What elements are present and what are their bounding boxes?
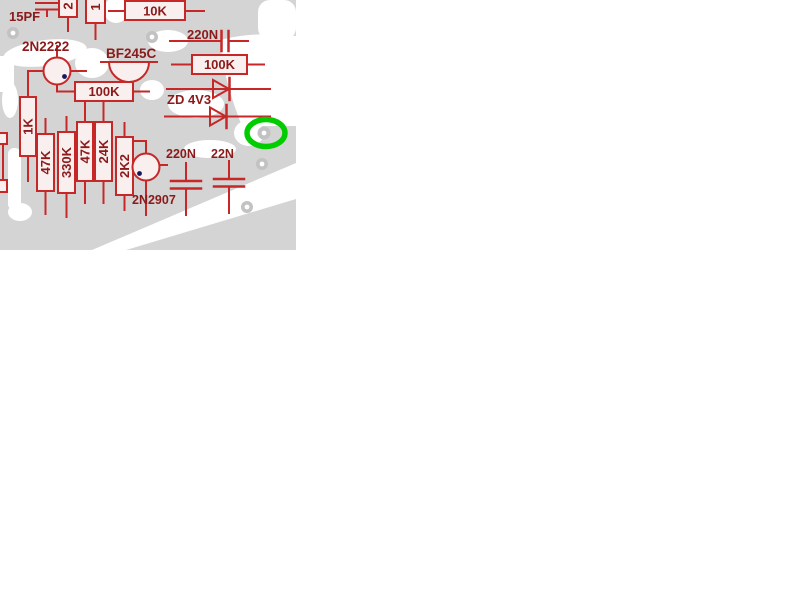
label-47k-a: 47K — [38, 150, 53, 174]
label-220n-top: 220N — [187, 27, 218, 42]
label-100k-right: 100K — [204, 57, 236, 72]
label-resistor-top-b: 1 — [88, 3, 103, 10]
transistor-outline — [133, 154, 160, 181]
label-100k-left: 100K — [88, 84, 120, 99]
label-2n2907: 2N2907 — [132, 193, 176, 207]
label-bf245c: BF245C — [106, 46, 157, 61]
label-330k: 330K — [59, 146, 74, 178]
emitter-dot — [137, 171, 142, 176]
label-1k: 1K — [21, 118, 36, 135]
label-10k: 10K — [143, 4, 167, 19]
emitter-dot — [62, 74, 67, 79]
label-2n2222: 2N2222 — [22, 39, 69, 54]
label-zener: ZD 4V3 — [167, 92, 211, 107]
label-15pf: 15PF — [9, 9, 40, 24]
label-24k: 24K — [96, 139, 111, 163]
label-220n-bottom: 220N — [166, 147, 196, 161]
label-47k-b: 47K — [78, 139, 93, 163]
label-22n: 22N — [211, 147, 234, 161]
circuit-schematic-figure: 15PF 2 1 10K 2N2222 BF245C 220N 100K ZD … — [0, 0, 296, 250]
label-2k2: 2K2 — [117, 154, 132, 178]
label-resistor-top-a: 2 — [61, 2, 76, 9]
page-canvas: 15PF 2 1 10K 2N2222 BF245C 220N 100K ZD … — [0, 0, 800, 604]
transistor-outline — [44, 58, 71, 85]
